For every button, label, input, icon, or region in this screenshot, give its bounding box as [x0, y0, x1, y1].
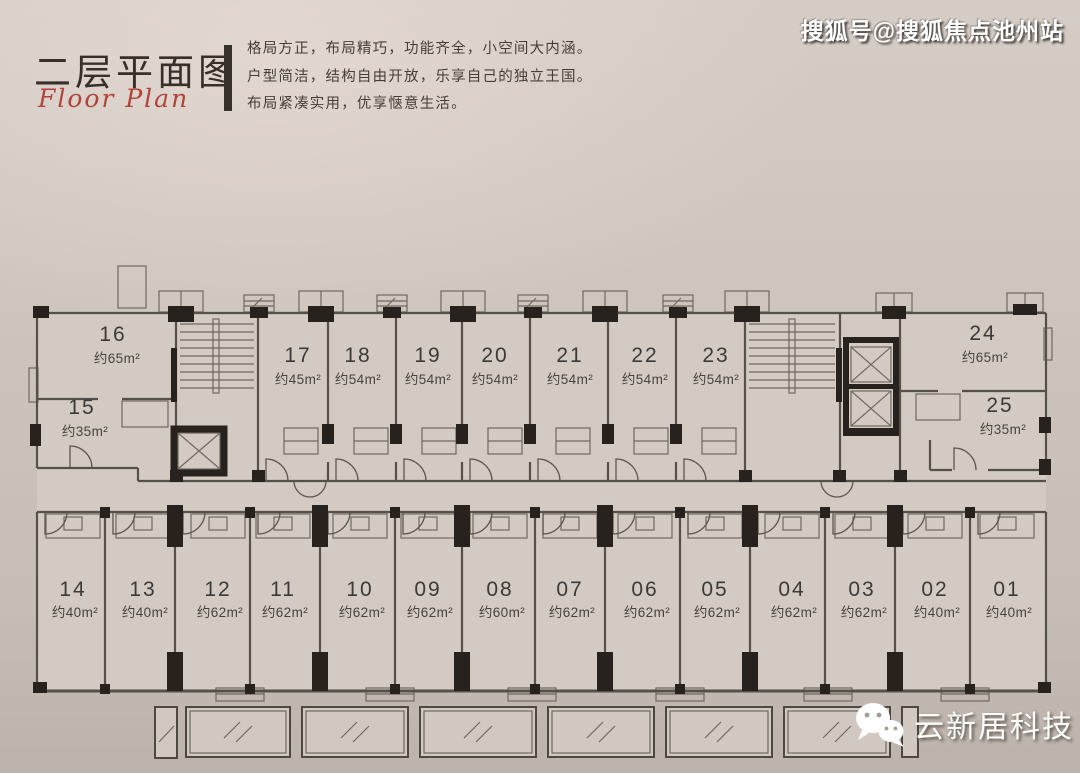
- unit-number: 03: [848, 578, 875, 601]
- unit-area: 约62m²: [624, 605, 670, 620]
- unit-number: 11: [270, 578, 296, 601]
- unit-number: 06: [631, 578, 658, 601]
- unit-number: 04: [778, 578, 805, 601]
- unit-area: 约62m²: [407, 605, 453, 620]
- description-line: 户型简洁，结构自由开放，乐享自己的独立王国。: [247, 64, 592, 92]
- unit-number: 19: [414, 344, 441, 367]
- unit-area: 约40m²: [914, 605, 960, 620]
- unit-number: 24: [969, 322, 996, 345]
- unit-number: 12: [204, 578, 231, 601]
- unit-number: 10: [346, 578, 373, 601]
- unit-number: 02: [921, 578, 948, 601]
- unit-number: 20: [481, 344, 508, 367]
- unit-number: 05: [701, 578, 728, 601]
- watermark-top-right: 搜狐号@搜狐焦点池州站: [801, 12, 1064, 46]
- unit-area: 约35m²: [980, 422, 1026, 437]
- unit-number: 21: [556, 344, 583, 367]
- unit-number: 14: [59, 578, 86, 601]
- canopy-strip: [155, 707, 918, 758]
- watermark-bottom-text: 云新居科技: [914, 702, 1074, 746]
- unit-area: 约54m²: [472, 372, 518, 387]
- unit-number: 13: [129, 578, 156, 601]
- unit-number: 08: [486, 578, 513, 601]
- page-subtitle: Floor Plan: [38, 84, 189, 113]
- unit-number: 07: [556, 578, 583, 601]
- wechat-icon: [852, 700, 906, 748]
- description-line: 格局方正，布局精巧，功能齐全，小空间大内涵。: [247, 36, 592, 64]
- unit-area: 约45m²: [275, 372, 321, 387]
- unit-area: 约54m²: [693, 372, 739, 387]
- unit-number: 22: [631, 344, 658, 367]
- title-divider-bar: [224, 45, 232, 111]
- description-text: 格局方正，布局精巧，功能齐全，小空间大内涵。 户型简洁，结构自由开放，乐享自己的…: [247, 36, 592, 119]
- unit-number: 23: [702, 344, 729, 367]
- unit-area: 约40m²: [52, 605, 98, 620]
- unit-area: 约40m²: [986, 605, 1032, 620]
- unit-area: 约62m²: [771, 605, 817, 620]
- unit-area: 约62m²: [841, 605, 887, 620]
- unit-area: 约54m²: [547, 372, 593, 387]
- floor-plan-page: 16 约65m² 15 约35m² 17 约45m² 18 约54m² 19 约…: [0, 0, 1080, 773]
- unit-number: 09: [414, 578, 441, 601]
- unit-area: 约54m²: [622, 372, 668, 387]
- unit-area: 约65m²: [962, 350, 1008, 365]
- unit-area: 约35m²: [62, 424, 108, 439]
- unit-area: 约40m²: [122, 605, 168, 620]
- unit-area: 约54m²: [405, 372, 451, 387]
- unit-number: 16: [99, 323, 126, 346]
- unit-area: 约62m²: [549, 605, 595, 620]
- unit-area: 约62m²: [262, 605, 308, 620]
- unit-area: 约65m²: [94, 351, 140, 366]
- unit-number: 25: [986, 394, 1013, 417]
- unit-number: 17: [284, 344, 311, 367]
- unit-area: 约62m²: [694, 605, 740, 620]
- unit-area: 约62m²: [339, 605, 385, 620]
- unit-area: 约62m²: [197, 605, 243, 620]
- unit-number: 18: [344, 344, 371, 367]
- description-line: 布局紧凑实用，优享惬意生活。: [247, 91, 592, 119]
- unit-number: 01: [993, 578, 1020, 601]
- unit-number: 15: [68, 396, 95, 419]
- unit-area: 约60m²: [479, 605, 525, 620]
- unit-area: 约54m²: [335, 372, 381, 387]
- watermark-bottom-right: 云新居科技: [852, 700, 1074, 748]
